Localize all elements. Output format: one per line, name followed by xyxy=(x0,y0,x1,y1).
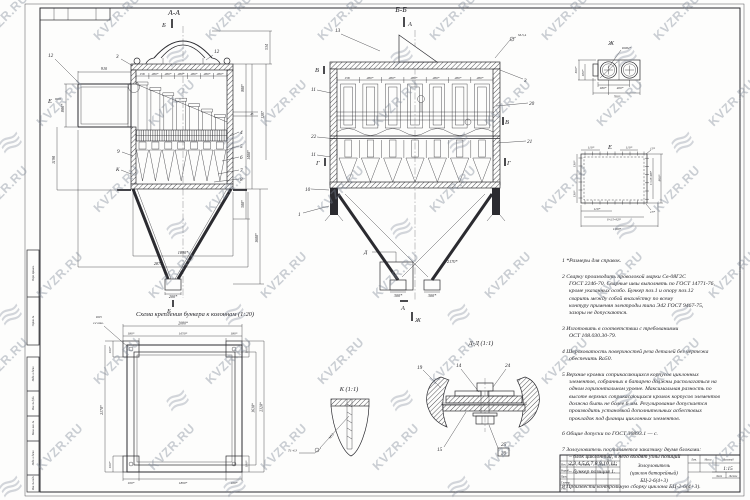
dim-label: 13* xyxy=(650,210,655,214)
dim-label: 1287 xyxy=(261,110,265,119)
view-marker: Ж xyxy=(414,317,422,324)
dim-label: 280* xyxy=(433,76,440,80)
dim-label: 1650* xyxy=(179,332,188,336)
margin-label: Справ. № xyxy=(32,315,35,326)
dim-label: 1890* xyxy=(178,250,189,255)
part-number: 25 xyxy=(501,442,507,448)
dim-label: 280* xyxy=(204,72,211,76)
dim-label: 300* xyxy=(574,66,578,73)
part-number: 22 xyxy=(311,134,317,140)
bolt-holes xyxy=(129,347,236,466)
view-marker: Е xyxy=(47,98,52,105)
dim-label: 1600* xyxy=(255,233,259,243)
view-caption: К (1:1) xyxy=(339,386,359,393)
dim-label: 180* xyxy=(128,332,135,336)
dim-label: 100* xyxy=(128,481,135,485)
part-number: 19 xyxy=(417,365,423,371)
dim-label: 200* xyxy=(169,294,178,299)
part-number: 10 xyxy=(305,187,311,193)
dim-label: 180* xyxy=(581,69,585,76)
section-marker: Д xyxy=(363,250,368,256)
dim-label: 2320* xyxy=(260,402,264,412)
margin-label: Инв. № подл. xyxy=(32,475,35,491)
part-number: 3 xyxy=(524,78,527,84)
view-title: Б-Б xyxy=(394,5,407,14)
dim-label: 280* xyxy=(411,76,418,80)
note-item: 4 Шероховатость поверхностей реза детале… xyxy=(562,349,740,364)
note-item: 1 *Размеры для справок. xyxy=(562,258,740,265)
part-number: 6 xyxy=(240,155,243,161)
margin-label: Перв. примен. xyxy=(32,265,35,282)
part-number: 21 xyxy=(527,139,533,145)
dim-label: 280* xyxy=(455,76,462,80)
dim-label: 280* xyxy=(191,72,198,76)
view-title: Ж xyxy=(607,40,615,47)
margin-tables: Перв. примен. Справ. № Подп. и дата Инв.… xyxy=(27,250,39,492)
view-caption: Схема крепления бункера к колоннам (1:20… xyxy=(136,311,254,318)
part-number: 12 xyxy=(48,53,54,59)
part-number: 15 xyxy=(437,447,443,453)
margin-label: Взам. инв. № xyxy=(32,420,35,435)
dim-label: 800* xyxy=(658,174,662,181)
dim-label: 2170* xyxy=(100,405,104,415)
view-section-aa: А-А Б 12 3 12 910 800* Е 1190 158 280* 2… xyxy=(47,8,272,315)
part-number: 5 xyxy=(240,144,243,150)
dim-label: 280* xyxy=(152,72,159,76)
dim-label: 400* xyxy=(617,86,624,90)
dim-label: 45 xyxy=(250,112,254,116)
dim-label: 13* xyxy=(650,147,655,151)
margin-label: Подп. и дата xyxy=(32,366,35,383)
dim-label: 910 xyxy=(101,66,108,71)
note-item: 7 Золоуловитель поставляется заказчику д… xyxy=(562,447,740,476)
dim-label: 760* xyxy=(614,95,621,99)
dim-label: 2170* xyxy=(447,259,458,264)
note-item: 6 Общие допуски по ГОСТ 30893.1 — с. xyxy=(562,431,740,438)
dim-label: 100* xyxy=(231,481,238,485)
dim-label: 280* xyxy=(389,76,396,80)
part-number: 20 xyxy=(529,101,535,107)
dim-label: 100* xyxy=(108,461,112,468)
hole-note: Ø25 xyxy=(95,315,102,319)
dim-label: 300* xyxy=(394,293,403,298)
dim-label: 1890* xyxy=(179,481,188,485)
section-marker: В xyxy=(315,67,319,74)
drawing-sheet: Перв. примен. Справ. № Подп. и дата Инв.… xyxy=(0,0,750,500)
margin-label: Инв. № дубл. xyxy=(32,396,35,411)
section-marker: А xyxy=(400,305,405,312)
part-number: 24 xyxy=(505,362,511,369)
view-caption: Д-Д (1:1) xyxy=(468,340,494,347)
detail-dd: Д-Д (1:1) 19 14 24 15 25 26 xyxy=(417,340,539,457)
weld-note: М-5,4 xyxy=(517,33,526,38)
section-marker: Г xyxy=(315,160,320,167)
dim-label: 280* xyxy=(178,72,185,76)
stud-label: М12 xyxy=(327,432,335,440)
part-number: 11 xyxy=(311,87,316,93)
corner-plates xyxy=(123,341,242,472)
detail-k: К (1:1) М12 Т1-4,3 xyxy=(288,386,369,456)
part-number: 13 xyxy=(335,28,341,34)
dim-label: 1630* xyxy=(252,403,256,413)
dim-label: 1180* xyxy=(613,227,622,231)
dim-label: 500* xyxy=(241,200,245,208)
part-number: 1 xyxy=(298,212,301,218)
dim-label: 5×120=600* xyxy=(650,170,653,185)
note-item: 8 Произвести контрольную сборку циклона … xyxy=(562,484,740,491)
dim-label: 2080* xyxy=(178,322,188,326)
dim-label: 180* xyxy=(600,86,607,90)
section-marker: В xyxy=(505,119,509,126)
part-number: 9 xyxy=(117,149,120,155)
dim-label: 158 xyxy=(139,72,144,76)
view-marker: К xyxy=(115,167,120,173)
view-e: Е 5×120=600* 800* 110* 110* 13* 130* 130… xyxy=(573,144,664,231)
part-number: 11 xyxy=(311,152,316,158)
part-number: 8 xyxy=(240,177,243,183)
part-number: 14 xyxy=(456,362,462,369)
dim-label: 8×115=920* xyxy=(607,219,621,222)
dim-label: 100* xyxy=(108,346,112,353)
view-zh: Ж Ø282* 300* 180* 180* 400* 760* xyxy=(574,40,640,99)
section-marker: А xyxy=(407,21,412,28)
dim-label: 2875 xyxy=(154,261,162,266)
dim-label: 110* xyxy=(588,146,595,150)
note-item: 5 Верхние кромки соприкасающихся корпусо… xyxy=(562,372,740,423)
dim-label: 800* xyxy=(60,103,65,112)
dim-label: 280* xyxy=(367,76,374,80)
dim-label: 1190 xyxy=(51,155,56,164)
dim-label: 130* xyxy=(573,160,577,167)
part-number: 12 xyxy=(214,49,220,55)
section-marker: Г xyxy=(506,160,511,167)
dim-label: 110* xyxy=(594,207,601,211)
part-number: 26 xyxy=(501,451,507,457)
view-plan-scheme: Схема крепления бункера к колоннам (1:20… xyxy=(93,311,264,485)
note-item: 3 Изготовить в соответствии с требования… xyxy=(562,326,740,341)
margin-label: Подп. и дата xyxy=(32,450,35,467)
view-title: А-А xyxy=(167,8,180,17)
technical-notes: 1 *Размеры для справок. 2 Сварку произво… xyxy=(562,251,740,500)
dim-label: 180* xyxy=(231,332,238,336)
dim-label: 300* xyxy=(428,293,437,298)
dim-label: 130* xyxy=(573,190,577,197)
dim-label: 180* xyxy=(245,460,249,467)
note-item: 2 Сварку производить проволокой марки Св… xyxy=(562,274,740,318)
dim-label: 180* xyxy=(245,346,249,353)
hole-note: 12 отв. xyxy=(93,321,104,325)
dim-label: 800* xyxy=(241,84,245,92)
dim-label: Ø282* xyxy=(621,46,632,50)
dim-label: 280* xyxy=(477,76,484,80)
part-number: 7 xyxy=(240,168,243,174)
part-number: 3 xyxy=(116,54,119,60)
dim-label: 110* xyxy=(626,146,633,150)
section-marker: Б xyxy=(161,22,166,29)
weld-flag: Т1-4,3 xyxy=(288,449,297,454)
view-section-bb: Б-Б А 13 М-5,4 158 280* 280* 280* 280* 2… xyxy=(298,5,535,324)
view-title: Е xyxy=(607,144,612,151)
dim-label: 534 xyxy=(265,44,269,50)
dim-label: 280* xyxy=(165,72,172,76)
part-number: 4 xyxy=(240,129,243,136)
dim-label: 280* xyxy=(217,72,224,76)
dim-label: 1400* xyxy=(247,150,251,160)
dim-label: 158 xyxy=(344,76,349,80)
